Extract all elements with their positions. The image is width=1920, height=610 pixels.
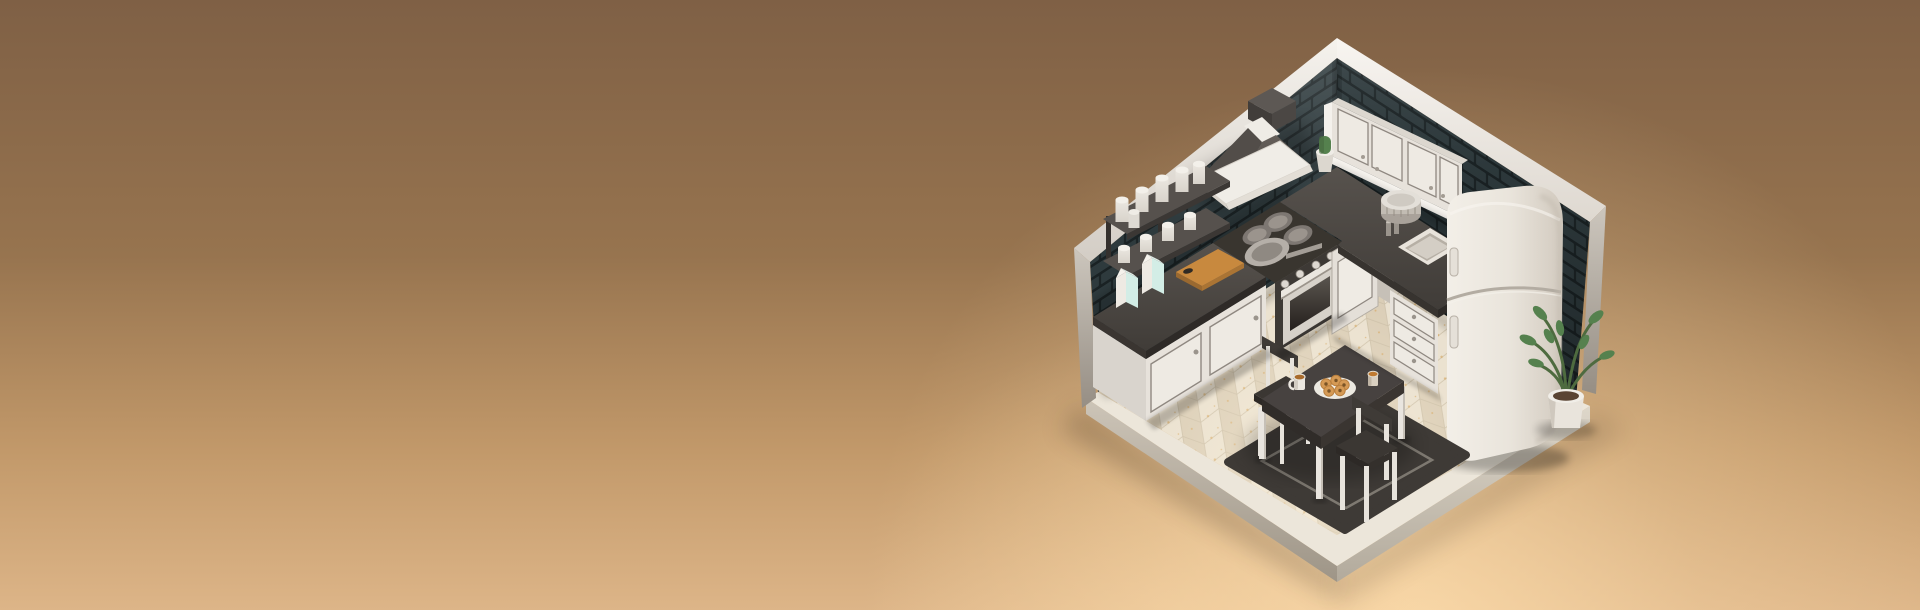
plate-stack <box>1381 190 1421 224</box>
backdrop <box>0 0 1920 610</box>
kitchen-render-stage: Miniature isometric kitchen room diorama… <box>0 0 1920 610</box>
fridge-body <box>1447 186 1563 461</box>
fridge-handle <box>1450 316 1458 348</box>
kitchen-isometric-render <box>0 0 1920 610</box>
fridge-handle <box>1450 248 1458 276</box>
coffee-cup <box>1368 371 1378 386</box>
